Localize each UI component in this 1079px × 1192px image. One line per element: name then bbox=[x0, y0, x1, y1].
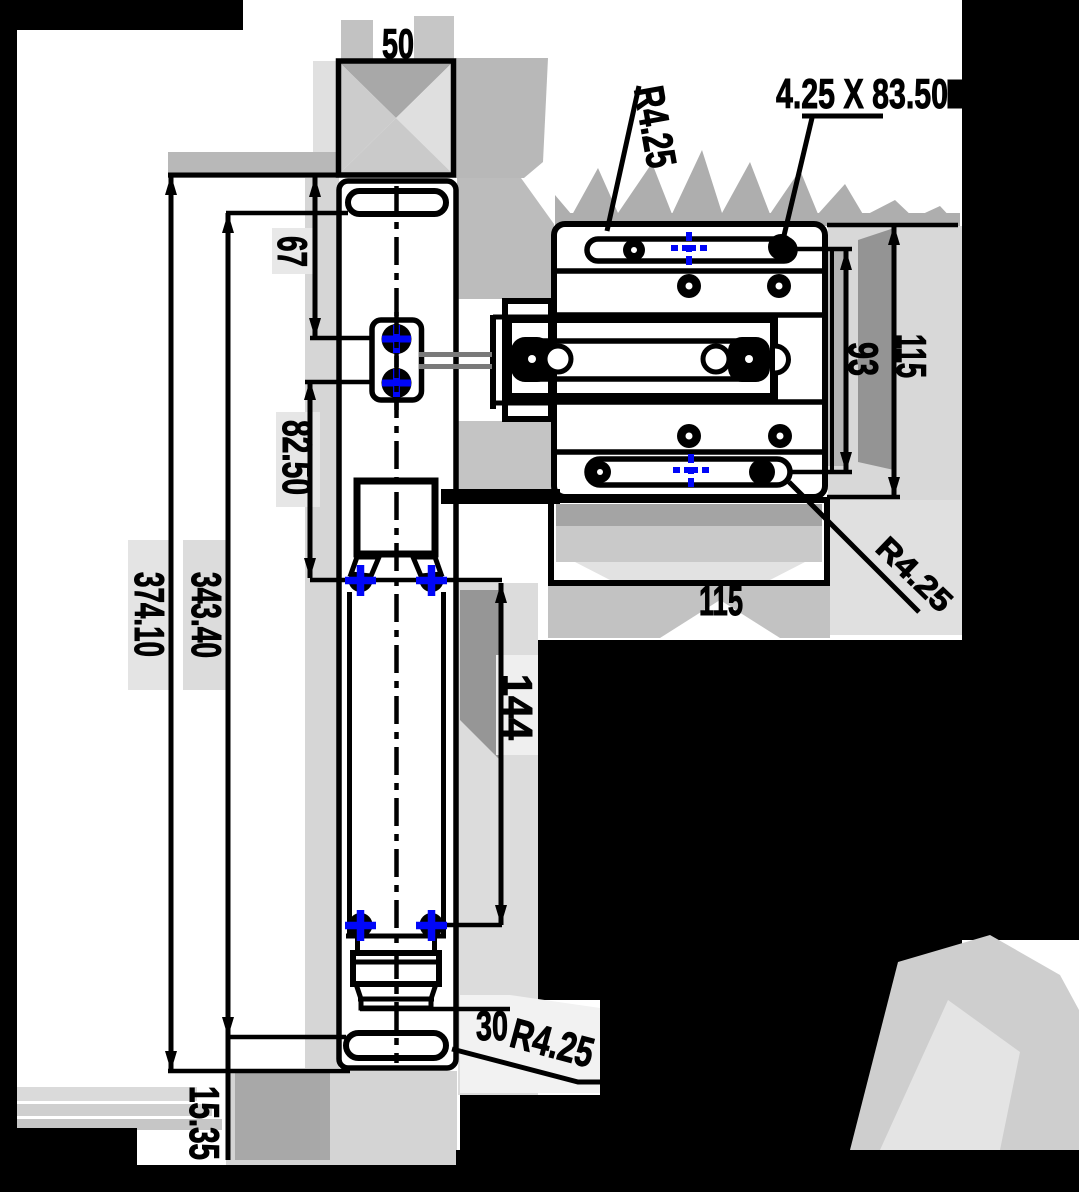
svg-text:93: 93 bbox=[840, 342, 887, 376]
svg-text:82.50: 82.50 bbox=[274, 420, 321, 495]
svg-text:374.10: 374.10 bbox=[126, 572, 173, 657]
svg-text:343.40: 343.40 bbox=[183, 572, 230, 658]
svg-text:115: 115 bbox=[699, 577, 743, 624]
svg-text:115: 115 bbox=[888, 334, 935, 378]
svg-text:67: 67 bbox=[269, 236, 316, 267]
svg-text:4.25 X 83.50: 4.25 X 83.50 bbox=[776, 70, 948, 117]
svg-text:15.35: 15.35 bbox=[181, 1086, 228, 1160]
svg-text:50: 50 bbox=[382, 20, 414, 67]
svg-text:30: 30 bbox=[476, 1002, 508, 1049]
svg-text:144: 144 bbox=[494, 674, 541, 741]
